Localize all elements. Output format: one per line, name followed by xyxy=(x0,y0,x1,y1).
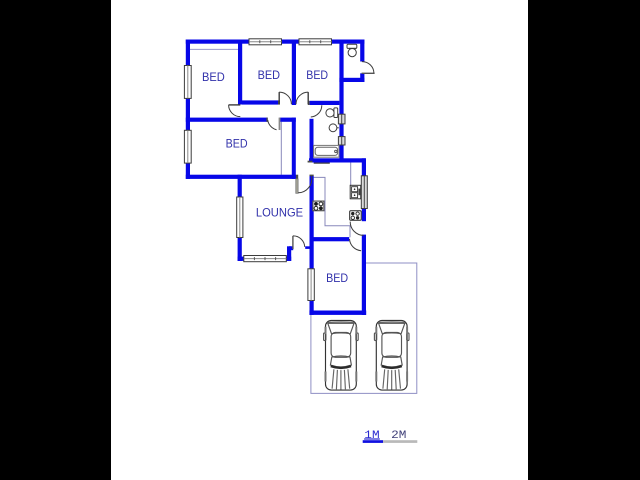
svg-text:BED: BED xyxy=(258,70,280,82)
svg-text:BED: BED xyxy=(226,138,248,150)
svg-text:BED: BED xyxy=(202,72,225,84)
svg-text:LOUNGE: LOUNGE xyxy=(256,207,303,220)
svg-text:BED: BED xyxy=(326,273,348,285)
svg-text:BED: BED xyxy=(306,70,328,82)
